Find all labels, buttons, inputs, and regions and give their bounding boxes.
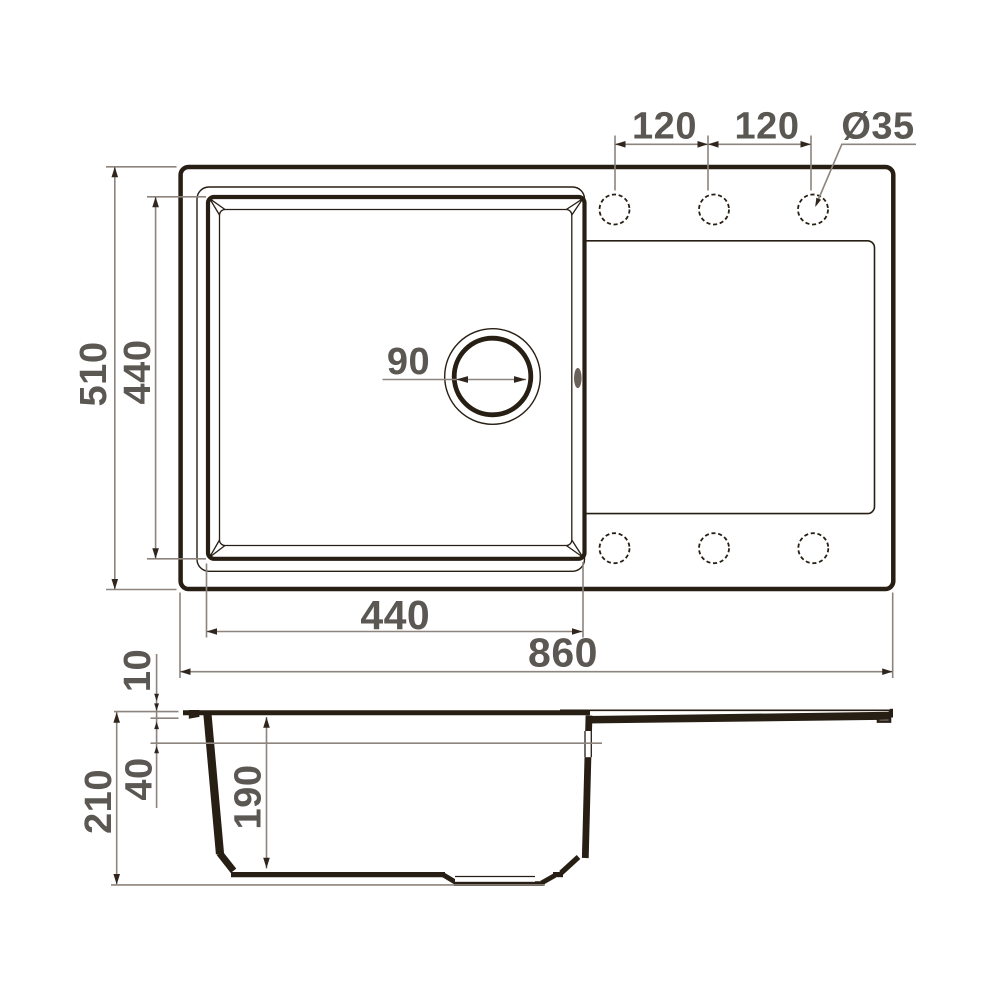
svg-text:Ø35: Ø35 <box>841 106 914 148</box>
svg-text:40: 40 <box>119 757 161 800</box>
svg-text:860: 860 <box>528 630 598 676</box>
svg-text:120: 120 <box>632 106 697 148</box>
svg-text:190: 190 <box>227 765 269 830</box>
svg-text:210: 210 <box>78 769 120 834</box>
svg-text:510: 510 <box>73 342 115 407</box>
svg-text:90: 90 <box>387 341 430 383</box>
svg-text:120: 120 <box>735 106 800 148</box>
svg-text:440: 440 <box>360 592 430 638</box>
svg-text:440: 440 <box>117 340 159 405</box>
svg-text:10: 10 <box>117 649 159 692</box>
